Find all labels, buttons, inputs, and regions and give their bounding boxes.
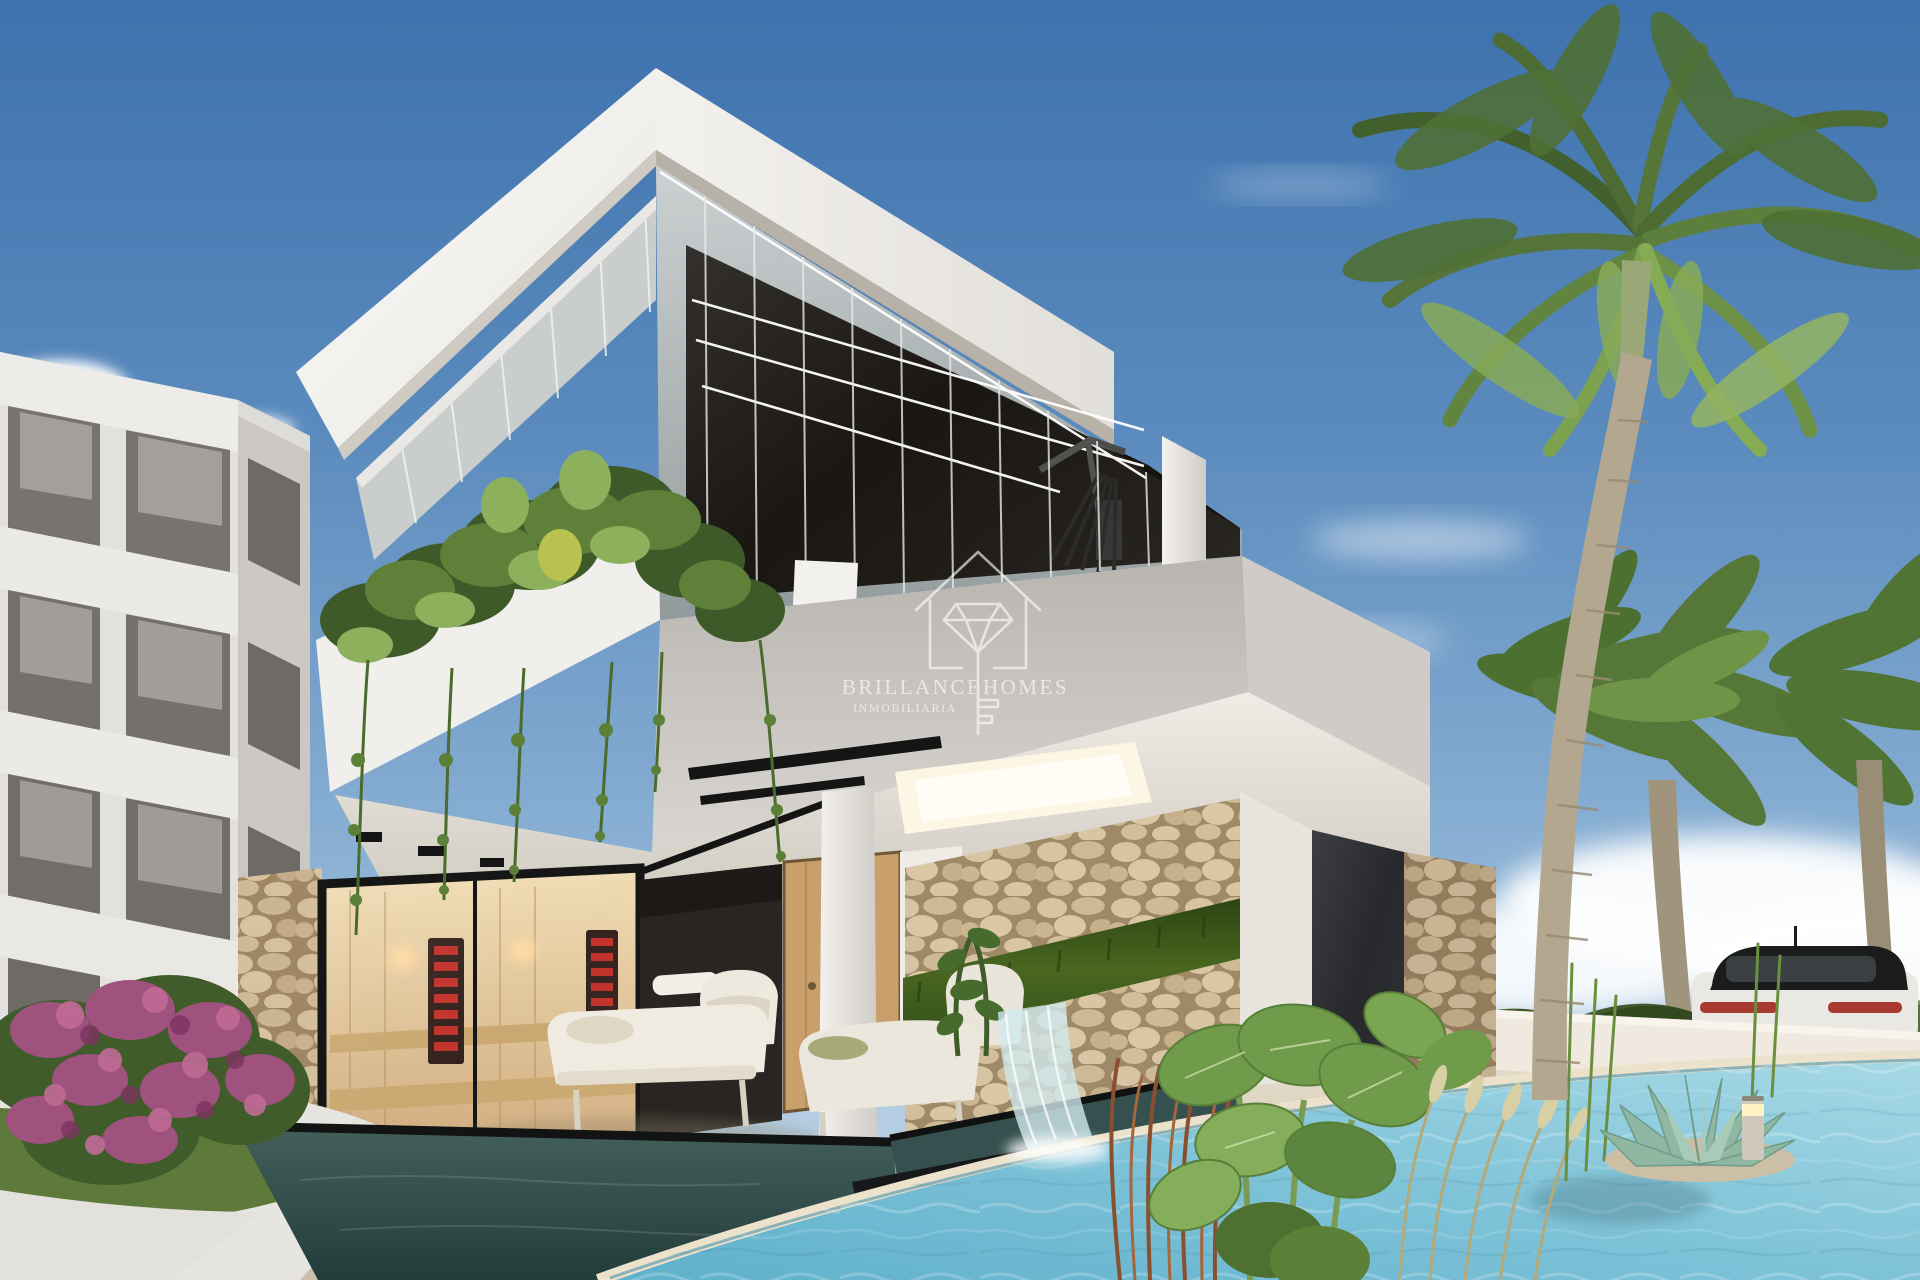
watermark-brand-right: HOMES [983, 675, 1069, 699]
door-handle [808, 982, 816, 990]
cushion [566, 1016, 634, 1044]
green-cushion [808, 1036, 868, 1060]
villa-render: BRILLANCE HOMES INMOBILIARIA [0, 0, 1920, 1280]
car-antenna [1794, 926, 1797, 948]
watermark-subtitle: INMOBILIARIA [853, 701, 957, 715]
watermark-brand-left: BRILLANCE [842, 675, 982, 699]
render-stage: BRILLANCE HOMES INMOBILIARIA [0, 0, 1920, 1280]
bollard-light [1742, 1096, 1764, 1160]
yellow-leaf [538, 529, 582, 581]
